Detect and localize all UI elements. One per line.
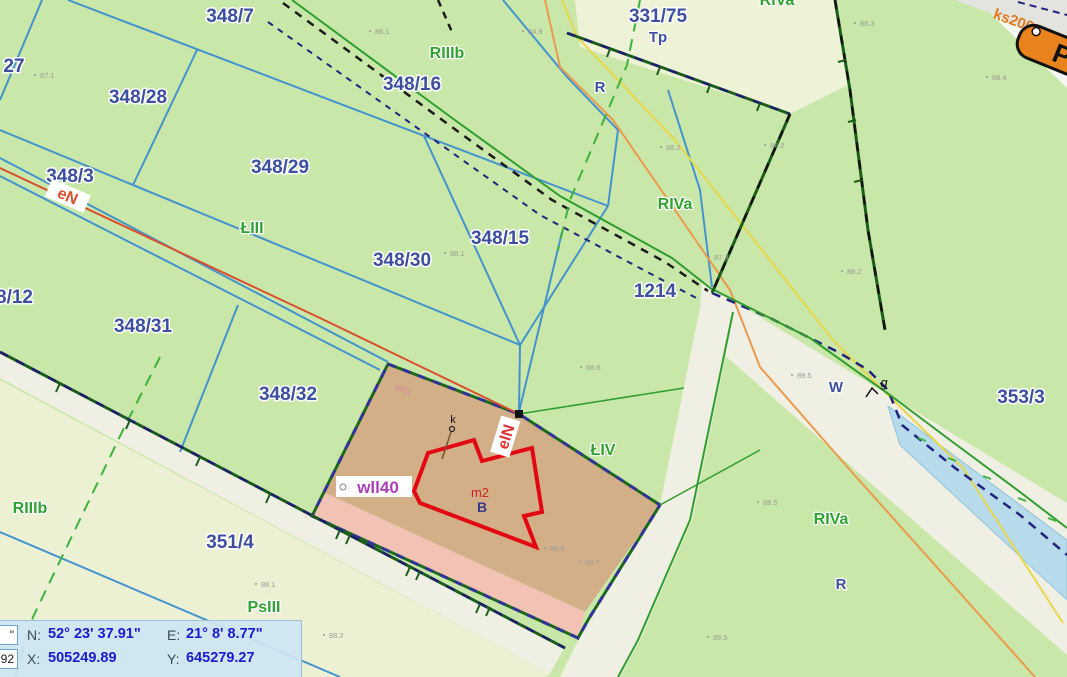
svg-text:87.3: 87.3 [714, 253, 729, 262]
svg-text:84.9: 84.9 [528, 27, 543, 36]
soil-label-riiib-top: RIIIb [430, 45, 465, 62]
water-pipe-label-group: wll40 [336, 476, 412, 497]
soil-label-riva-top-cut: RIVa [760, 0, 795, 9]
svg-text:89.5: 89.5 [713, 633, 728, 642]
y-value: 645279.27 [186, 650, 255, 666]
parcel-label-1214: 1214 [634, 281, 677, 302]
svg-text:88.2: 88.2 [329, 631, 344, 640]
soil-label-psiii: PsIII [248, 599, 281, 616]
landuse-label-tp: Tp [649, 29, 667, 46]
svg-text:88.2: 88.2 [666, 143, 681, 152]
parcel-label-351-4: 351/4 [206, 532, 254, 553]
map-canvas[interactable]: ks200 P 27 348/7 348/28 348/29 348/3 8/1… [0, 0, 1067, 677]
parcel-label-348-32: 348/32 [259, 384, 317, 405]
parcel-label-348-7: 348/7 [206, 6, 254, 27]
east-value: 21° 8' 8.77" [186, 626, 263, 642]
building-area-label: m2 [471, 485, 489, 500]
svg-text:88.4: 88.4 [992, 73, 1007, 82]
boundary-vertex-point [515, 410, 523, 418]
east-label: E: [167, 627, 180, 643]
parcel-label-27: 27 [3, 56, 24, 77]
parcel-label-348-29: 348/29 [251, 157, 309, 178]
svg-text:88.3: 88.3 [860, 19, 875, 28]
y-label: Y: [167, 651, 179, 667]
svg-text:88.7: 88.7 [585, 558, 600, 567]
svg-text:86.2: 86.2 [770, 141, 785, 150]
landuse-label-r-bottom: R [836, 576, 847, 593]
coordinate-statusbar: " 92 N: 52° 23' 37.91" E: 21° 8' 8.77" X… [0, 620, 302, 677]
soil-label-riva-mid: RIVa [658, 196, 693, 213]
soil-label-riiib-left: RIIIb [13, 500, 48, 517]
svg-text:88.6: 88.6 [550, 544, 565, 553]
x-value: 505249.89 [48, 650, 117, 666]
unit-selector-box[interactable]: " [0, 625, 18, 645]
parcel-label-348-30: 348/30 [373, 250, 431, 271]
parcel-label-348-15: 348/15 [471, 228, 530, 249]
svg-text:89.5: 89.5 [797, 371, 812, 380]
landuse-label-w-ditch: W [829, 379, 844, 396]
svg-text:88.1: 88.1 [450, 249, 465, 258]
parcel-label-353-3: 353/3 [997, 387, 1045, 408]
parcel-label-348-31: 348/31 [114, 316, 173, 337]
gate-label-g: g [880, 375, 888, 390]
soil-label-liv: ŁIV [591, 442, 616, 459]
soil-label-liii: ŁIII [240, 220, 263, 237]
parcel-label-348-28: 348/28 [109, 87, 167, 108]
x-label: X: [27, 651, 40, 667]
svg-text:87.1: 87.1 [40, 71, 55, 80]
landuse-label-r-top: R [595, 79, 606, 96]
building-type-label: B [477, 499, 487, 515]
svg-text:88.1: 88.1 [261, 580, 276, 589]
crs-selector-box[interactable]: 92 [0, 649, 18, 669]
north-value: 52° 23' 37.91" [48, 626, 141, 642]
north-label: N: [27, 627, 41, 643]
soil-label-riva-bottom: RIVa [814, 511, 849, 528]
parcel-label-331-75: 331/75 [629, 6, 688, 27]
svg-text:88.6: 88.6 [586, 363, 601, 372]
water-pipe-label: wll40 [356, 478, 399, 497]
svg-text:88.5: 88.5 [763, 498, 778, 507]
svg-text:88.2: 88.2 [847, 267, 862, 276]
chimney-label: k [450, 414, 456, 426]
svg-text:86.1: 86.1 [375, 27, 390, 36]
map-viewport: ks200 P 27 348/7 348/28 348/29 348/3 8/1… [0, 0, 1067, 677]
parcel-label-8-12: 8/12 [0, 287, 33, 308]
parcel-label-348-16: 348/16 [383, 74, 441, 95]
